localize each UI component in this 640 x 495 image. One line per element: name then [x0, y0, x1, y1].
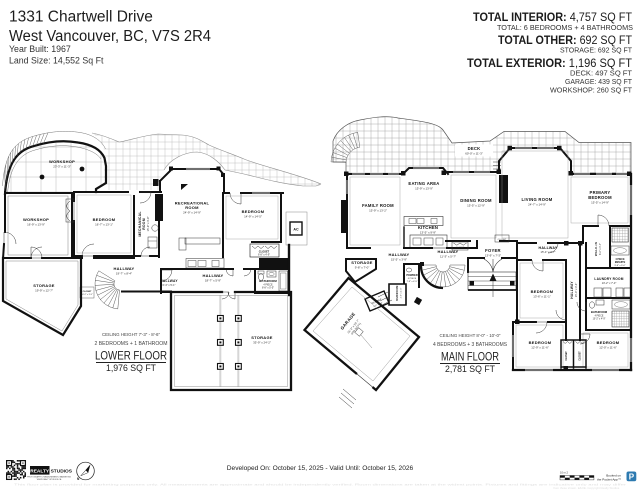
svg-text:AC: AC — [293, 228, 299, 232]
svg-text:STUDIOS: STUDIOS — [51, 469, 73, 475]
svg-text:35′-9″ x 24′-2″: 35′-9″ x 24′-2″ — [253, 340, 271, 344]
svg-text:ENSUITE: ENSUITE — [615, 261, 626, 264]
svg-text:13′-9″ x 7′-3″: 13′-9″ x 7′-3″ — [485, 253, 501, 257]
svg-text:10′-2″ x 3′-9″: 10′-2″ x 3′-9″ — [81, 294, 92, 296]
svg-text:STORAGE: STORAGE — [251, 335, 273, 340]
svg-text:WORKSHOP: WORKSHOP — [23, 217, 49, 222]
svg-text:WWW.REALTYSTUDIOS.CA: WWW.REALTYSTUDIOS.CA — [37, 478, 62, 481]
svg-text:CLOSET: CLOSET — [580, 351, 582, 361]
svg-text:WORKSHOP: WORKSHOP — [49, 159, 75, 164]
svg-text:Year Built: 1967: Year Built: 1967 — [9, 44, 71, 54]
svg-text:23′-3″ x 11′-3″: 23′-3″ x 11′-3″ — [53, 164, 71, 168]
svg-text:EATING AREA: EATING AREA — [408, 181, 439, 186]
svg-text:11′-3″ x 5′-7″: 11′-3″ x 5′-7″ — [440, 254, 456, 258]
svg-text:4 PIECE: 4 PIECE — [595, 315, 604, 317]
svg-text:2,781 SQ FT: 2,781 SQ FT — [445, 364, 495, 375]
svg-text:60′-0″ x 11′-3″: 60′-0″ x 11′-3″ — [465, 151, 483, 155]
svg-text:ROOM: ROOM — [185, 205, 199, 210]
svg-text:West Vancouver, BC, V7S 2R4: West Vancouver, BC, V7S 2R4 — [9, 28, 211, 45]
svg-text:10′-2″ x 4′-9″: 10′-2″ x 4′-9″ — [593, 319, 606, 321]
svg-text:CLOSET: CLOSET — [566, 351, 568, 361]
svg-text:BEDROOM: BEDROOM — [531, 289, 554, 294]
svg-text:LOWER FLOOR: LOWER FLOOR — [95, 349, 167, 363]
svg-text:1,976 SQ FT: 1,976 SQ FT — [106, 363, 156, 374]
svg-text:19′-7″ x 8′-4″: 19′-7″ x 8′-4″ — [116, 271, 132, 275]
svg-text:10′-2″ x 7′-3″: 10′-2″ x 7′-3″ — [602, 281, 617, 285]
svg-text:DINING ROOM: DINING ROOM — [460, 198, 492, 203]
svg-text:10 m 2: 10 m 2 — [560, 471, 568, 475]
svg-text:the Pocket App™: the Pocket App™ — [597, 478, 621, 482]
svg-text:6′-8″ x 4′-9″: 6′-8″ x 4′-9″ — [258, 254, 270, 257]
svg-text:FAMILY ROOM: FAMILY ROOM — [362, 203, 394, 208]
svg-text:19′-9″ x 12′-7″: 19′-9″ x 12′-7″ — [35, 288, 53, 292]
svg-text:MAIN FLOOR: MAIN FLOOR — [441, 350, 499, 364]
svg-text:BEDROOM: BEDROOM — [588, 195, 612, 200]
svg-text:BATHROOM: BATHROOM — [259, 279, 277, 283]
svg-text:15′-4″ x 3′-4″: 15′-4″ x 3′-4″ — [574, 283, 578, 298]
svg-text:15′-9″ x 4′-9″: 15′-9″ x 4′-9″ — [146, 216, 150, 231]
svg-text:POWDER: POWDER — [406, 274, 417, 277]
svg-text:15′-5″ x 12′-9″: 15′-5″ x 12′-9″ — [467, 203, 485, 207]
svg-text:15′-5″ x 3′-9″: 15′-5″ x 3′-9″ — [391, 257, 407, 261]
svg-text:ROOM: ROOM — [142, 218, 146, 230]
svg-text:KITCHEN: KITCHEN — [418, 225, 438, 230]
svg-text:CEILING HEIGHT 7′-3″ - 8′-6″: CEILING HEIGHT 7′-3″ - 8′-6″ — [102, 332, 161, 337]
svg-text:BEDROOM: BEDROOM — [93, 217, 116, 222]
svg-text:HALLWAY: HALLWAY — [570, 281, 574, 299]
svg-text:16′-9″ x 13′-9″: 16′-9″ x 13′-9″ — [27, 222, 45, 226]
svg-text:STORAGE: STORAGE — [33, 283, 55, 288]
svg-text:4 BEDROOMS + 3 BATHROOMS: 4 BEDROOMS + 3 BATHROOMS — [433, 342, 508, 348]
svg-text:6′-4″ x 5′-1″: 6′-4″ x 5′-1″ — [162, 283, 175, 287]
svg-text:CLOSET: CLOSET — [83, 291, 93, 293]
svg-text:LIVING ROOM: LIVING ROOM — [522, 197, 553, 202]
svg-text:STORAGE: STORAGE — [351, 260, 373, 265]
svg-text:DECK: DECK — [468, 146, 481, 151]
svg-text:15′-4″ x 3′-7″: 15′-4″ x 3′-7″ — [540, 250, 555, 254]
svg-text:WALK-IN: WALK-IN — [594, 242, 598, 256]
svg-text:2 BEDROOMS + 1 BATHROOM: 2 BEDROOMS + 1 BATHROOM — [95, 341, 168, 347]
svg-text:12′-9″ x 11′-6″: 12′-9″ x 11′-6″ — [531, 345, 549, 349]
svg-text:13′-5″ x 9′-9″: 13′-5″ x 9′-9″ — [420, 230, 436, 234]
svg-text:HALLWAY: HALLWAY — [160, 279, 178, 283]
svg-text:P: P — [629, 472, 635, 481]
svg-text:15′-9″ x 13′-2″: 15′-9″ x 13′-2″ — [369, 208, 387, 212]
svg-text:BATHROOM: BATHROOM — [591, 310, 608, 314]
svg-text:BEDROOM: BEDROOM — [242, 209, 265, 214]
svg-text:BEDROOM: BEDROOM — [529, 340, 552, 345]
svg-text:STORAGE: 692 SQ FT: STORAGE: 692 SQ FT — [560, 46, 632, 55]
svg-text:24′-7″ x 14′-9″: 24′-7″ x 14′-9″ — [528, 202, 546, 206]
svg-text:7′-9″ x 4′-5″: 7′-9″ x 4′-5″ — [406, 281, 417, 283]
svg-text:REALTY: REALTY — [30, 469, 50, 475]
svg-text:CLOSET: CLOSET — [498, 239, 507, 241]
svg-text:BEDROOM: BEDROOM — [597, 340, 620, 345]
svg-text:Land Size: 14,552 Sq Ft: Land Size: 14,552 Sq Ft — [9, 56, 104, 66]
svg-text:from those shown. E&OE. Copyri: from those shown. E&OE. Copyright Realty… — [553, 486, 620, 490]
svg-text:6′-2″ x 4′-7″: 6′-2″ x 4′-7″ — [599, 243, 602, 255]
svg-text:MUDROOM: MUDROOM — [396, 285, 399, 300]
svg-text:15′-9″ x 13′-9″: 15′-9″ x 13′-9″ — [415, 186, 433, 190]
svg-text:TOTAL: 6 BEDROOMS + 4 BATHROOM: TOTAL: 6 BEDROOMS + 4 BATHROOMS — [497, 23, 633, 32]
svg-text:FOYER: FOYER — [485, 248, 501, 253]
svg-text:9′-8″ x 7′-0″: 9′-8″ x 7′-0″ — [355, 265, 370, 269]
svg-text:LAUNDRY ROOM: LAUNDRY ROOM — [594, 277, 623, 281]
svg-text:16′-7″ x 13′-1″: 16′-7″ x 13′-1″ — [95, 222, 113, 226]
svg-text:CLOSET: CLOSET — [456, 247, 465, 249]
svg-text:18′-7″ x 5′-9″: 18′-7″ x 5′-9″ — [205, 278, 221, 282]
svg-text:15′-5″ x 14′-9″: 15′-5″ x 14′-9″ — [591, 200, 609, 204]
svg-text:TOTAL INTERIOR: 4,757 SQ FT: TOTAL INTERIOR: 4,757 SQ FT — [473, 10, 632, 24]
svg-text:Developed On: October 15, 2025: Developed On: October 15, 2025 - Valid U… — [227, 465, 414, 472]
svg-text:12′-0″ x 11′-6″: 12′-0″ x 11′-6″ — [599, 345, 617, 349]
svg-text:4 PIECE: 4 PIECE — [408, 278, 417, 280]
svg-text:24′-9″ x 14′-9″: 24′-9″ x 14′-9″ — [183, 210, 201, 214]
svg-text:1331 Chartwell Drive: 1331 Chartwell Drive — [9, 9, 153, 26]
svg-text:HALLWAY: HALLWAY — [203, 273, 224, 278]
svg-text:CEILING HEIGHT 8′-0″ - 10′-0″: CEILING HEIGHT 8′-0″ - 10′-0″ — [440, 333, 502, 338]
svg-text:14′-9″ x 14′-5″: 14′-9″ x 14′-5″ — [244, 214, 262, 218]
svg-text:13′-6″ x 11′-1″: 13′-6″ x 11′-1″ — [533, 294, 551, 298]
svg-text:HALLWAY: HALLWAY — [539, 246, 558, 250]
svg-text:8′-8″ x 5′-5″: 8′-8″ x 5′-5″ — [262, 287, 274, 290]
svg-text:9′-8″ x 5′-0″: 9′-8″ x 5′-0″ — [614, 265, 625, 267]
svg-text:WORKSHOP: 260 SQ FT: WORKSHOP: 260 SQ FT — [550, 86, 632, 95]
svg-text:4′-9″ x 4′-5″: 4′-9″ x 4′-5″ — [401, 288, 403, 299]
svg-text:This floor plan is provided fo: This floor plan is provided for marketin… — [14, 483, 626, 487]
svg-text:HALLWAY: HALLWAY — [389, 252, 410, 257]
svg-text:HALLWAY: HALLWAY — [114, 266, 135, 271]
